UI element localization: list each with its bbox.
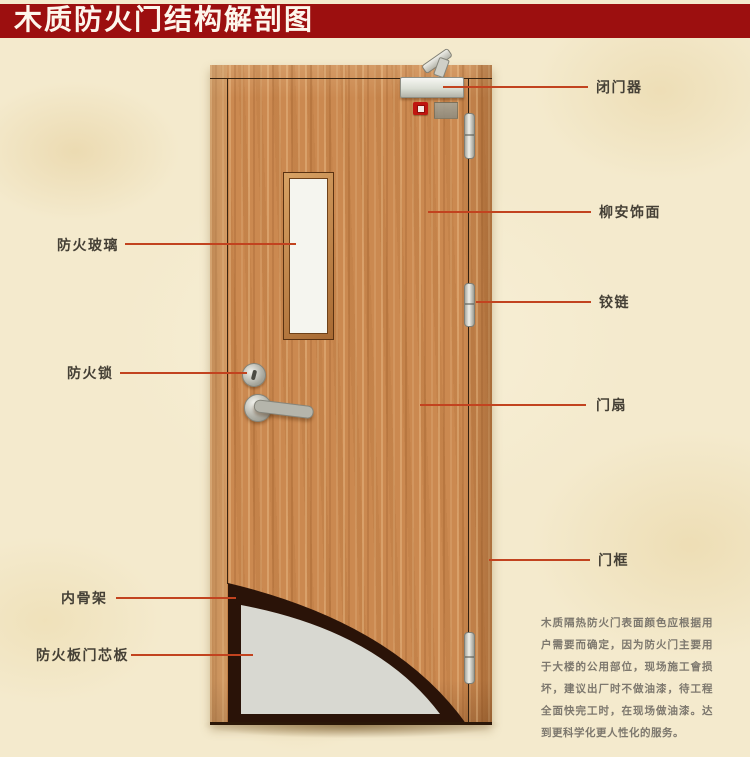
door-bottom-edge (210, 722, 492, 725)
leader-line-fire-board-core (131, 654, 253, 656)
leader-line-lauan-veneer (428, 211, 591, 213)
page-title: 木质防火门结构解剖图 (0, 4, 750, 38)
door-photo (210, 65, 492, 725)
label-inner-skeleton: 内骨架 (61, 591, 108, 605)
leader-line-door-frame (489, 559, 590, 561)
label-fire-lock: 防火锁 (67, 366, 114, 380)
infographic-root: 木质防火门结构解剖图 防火玻璃 防火锁 (0, 0, 750, 757)
description-text: 木质隔热防火门表面颜色应根据用户需要而确定，因为防火门主要用于大楼的公用部位，现… (541, 612, 713, 744)
leader-line-fire-glass (125, 243, 296, 245)
core-board-layer (241, 605, 440, 714)
label-hinge: 铰链 (599, 295, 630, 309)
leader-line-hinge (476, 301, 591, 303)
label-door-closer: 闭门器 (596, 80, 643, 94)
leader-line-door-leaf (420, 404, 586, 406)
label-fire-board-core: 防火板门芯板 (36, 648, 129, 662)
cutaway-section (210, 65, 492, 725)
label-fire-glass: 防火玻璃 (57, 238, 119, 252)
leader-line-fire-lock (120, 372, 247, 374)
label-lauan-veneer: 柳安饰面 (599, 205, 661, 219)
label-door-leaf: 门扇 (596, 398, 627, 412)
leader-line-inner-skeleton (116, 597, 236, 599)
label-door-frame: 门框 (598, 553, 629, 567)
leader-line-door-closer (443, 86, 588, 88)
title-banner: 木质防火门结构解剖图 (0, 4, 750, 38)
